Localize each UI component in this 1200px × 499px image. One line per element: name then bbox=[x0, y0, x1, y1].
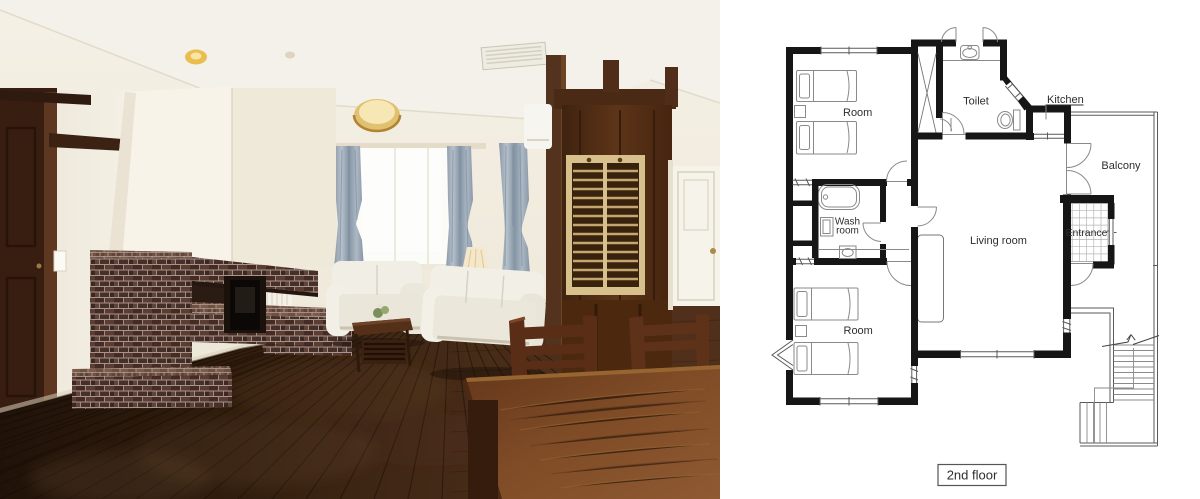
svg-text:Toilet: Toilet bbox=[963, 96, 989, 108]
svg-text:Room: Room bbox=[843, 107, 872, 119]
svg-text:Living room: Living room bbox=[970, 235, 1027, 247]
svg-text:Kitchen: Kitchen bbox=[1047, 94, 1084, 106]
svg-text:2nd floor: 2nd floor bbox=[947, 468, 998, 483]
svg-text:Entrance: Entrance bbox=[1066, 227, 1108, 239]
svg-text:Room: Room bbox=[844, 325, 873, 337]
svg-text:Balcony: Balcony bbox=[1101, 160, 1141, 172]
svg-text:room: room bbox=[836, 226, 859, 237]
